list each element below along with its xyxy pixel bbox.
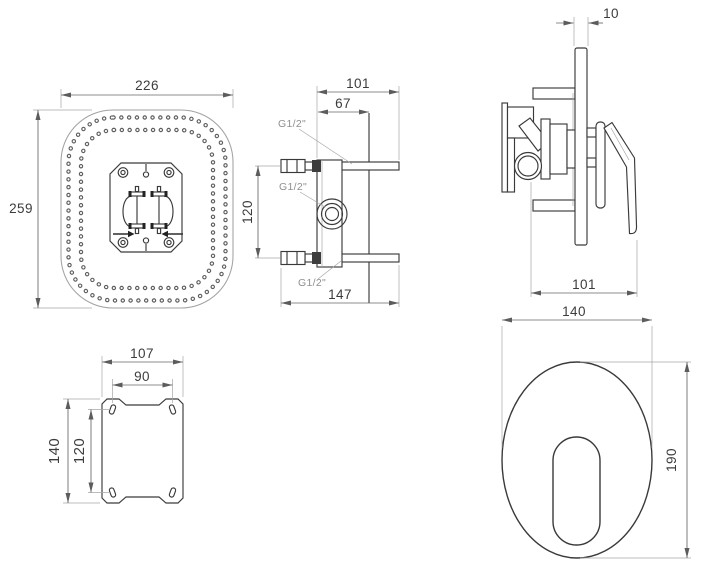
view-mixer-trim-side: 10 101: [502, 6, 637, 297]
shower-head-mounting-bracket: [110, 163, 183, 252]
mixer-trim-plate: [575, 48, 587, 245]
dim-label-101: 101: [346, 76, 370, 91]
dim-shower-head-height: 259: [9, 110, 92, 308]
port-label-middle: G1/2": [279, 181, 307, 193]
port-label-top: G1/2": [278, 118, 306, 130]
technical-drawing-sheet: 226 259: [0, 0, 701, 577]
port-label-bottom: G1/2": [298, 277, 326, 289]
dim-plate-thickness: 10: [556, 6, 619, 46]
dim-label-bracket-140: 140: [46, 438, 63, 464]
dim-valve-total-depth: 101: [317, 76, 399, 160]
dim-label-trim-140: 140: [562, 304, 586, 319]
view-shower-head-front: 226 259: [9, 78, 233, 308]
top-union-fitting: [281, 160, 321, 173]
dim-label-10: 10: [603, 6, 619, 21]
dim-bracket-hole-spacing-width: 90: [113, 369, 173, 403]
mixer-valve-body: [502, 103, 576, 192]
dim-label-mixer-101: 101: [572, 277, 596, 292]
dim-label-90: 90: [134, 369, 150, 384]
dim-label-67: 67: [335, 96, 351, 111]
mixer-bottom-pipe: [533, 200, 575, 211]
dim-valve-front-depth: 67: [318, 96, 369, 112]
lever-handle: [604, 123, 637, 234]
mixer-handle: [587, 122, 637, 234]
view-valve-rough-in-side: G1/2" G1/2" G1/2" 101 67 120: [240, 76, 399, 307]
dim-label-bracket-120: 120: [71, 438, 88, 464]
bracket-plate-outline: [102, 399, 183, 503]
dim-label-259: 259: [9, 201, 33, 216]
dim-label-107: 107: [130, 346, 154, 361]
view-trim-plate-front: 140 190: [502, 304, 691, 558]
dim-valve-port-spacing: 120: [240, 166, 280, 258]
dim-label-147: 147: [328, 287, 352, 302]
dim-label-190: 190: [664, 448, 679, 472]
drawing-canvas: 226 259: [0, 0, 701, 577]
view-mounting-bracket-front: 107 90 140 120: [46, 346, 183, 503]
dim-label-226: 226: [135, 78, 159, 93]
mixer-top-pipe: [533, 88, 575, 99]
bottom-union-fitting: [281, 252, 321, 265]
dim-shower-head-width: 226: [61, 78, 233, 108]
dim-label-120: 120: [240, 200, 255, 224]
trim-plate-opening: [553, 437, 600, 545]
